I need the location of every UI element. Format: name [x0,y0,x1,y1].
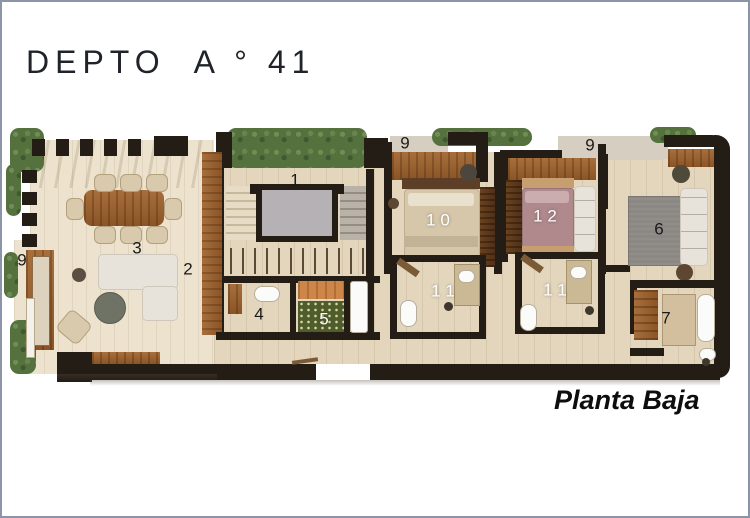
room-label: 4 [254,306,263,323]
room-label: 1 [290,172,299,189]
bath11b-toilet [520,304,537,331]
stair-flight-left [226,186,256,240]
bed10-top-corner-wall-v [476,132,488,182]
bath11a-toilet [400,300,417,327]
sofa-chaise [142,286,178,321]
dining-chair-7 [66,198,84,220]
bath7-shelves [634,290,658,340]
bath11a-left-wall [390,255,397,339]
room-label: 3 [132,240,141,257]
room6-entry-wall [605,265,630,272]
room6-sofa [680,188,708,266]
coffee-table [94,292,126,324]
room-label: 2 [183,261,192,278]
bath4-vanity [228,284,242,314]
top-wall-right [664,135,724,147]
planter-left-upper [6,164,21,216]
bed12-headboard [522,178,574,188]
floor-plan: 12345679991 01 11 21 1 [2,2,750,518]
dining-chair-3 [146,174,168,192]
bath11a-bottom-wall [390,332,486,339]
bath4-divider-wall [290,276,296,336]
room-label: 1 1 [431,283,455,300]
bed12-pergola [508,158,596,180]
dining-chair-8 [164,198,182,220]
left-beam-4 [22,234,37,247]
room-label: 5 [319,311,328,328]
bath11a-right-wall [479,255,486,339]
bath11a-shower-drain [444,302,453,311]
right-outer-wall [714,135,730,378]
room6-console [668,149,714,167]
pantry-door-panel [350,281,368,333]
plan-caption: Planta Baja [554,385,700,416]
pergola-header-block [154,136,188,156]
entrance-gap [316,364,370,380]
dining-chair-1 [94,174,116,192]
elevator-shaft [256,184,338,242]
room-label: 9 [17,252,26,269]
room-label: 6 [654,221,663,238]
bed10-plant-pot [460,164,477,181]
terrace-door-leaf [26,298,35,358]
bath7-top-wall [630,280,718,288]
pantry-counter [298,281,344,299]
pergola-beam-end-4 [104,139,117,156]
bath7-tub [697,294,715,342]
room-label: 1 1 [543,282,567,299]
bed12-pillows [525,191,569,203]
terrace-drop-shadow [57,374,217,381]
bath7-shower-drain [702,358,710,366]
bed10-pillows [408,193,474,206]
dining-chair-6 [146,226,168,244]
left-beam-1 [22,170,37,183]
floor-plan-sheet: DEPTO A ° 41 [0,0,750,518]
room-label: 9 [585,137,594,154]
room6-left-wall-upper [600,154,608,209]
bath4-toilet [254,286,280,302]
bed10-throw [404,236,478,247]
pergola-beam-end-3 [80,139,93,156]
bath7-bottom-wall [630,348,664,356]
room-label: 7 [661,310,670,327]
dining-table [84,190,164,226]
bath11b-shower-drain [585,306,594,315]
planter-stairs-hedge [227,128,367,168]
room6-plant [672,165,690,183]
kitchen-feature-wall [202,152,222,335]
bed12-closet [506,180,522,254]
left-beam-3 [22,213,37,226]
elevator-jamb-left [250,184,262,194]
dining-chair-4 [94,226,116,244]
room-label: 1 0 [426,212,450,229]
side-table [72,268,86,282]
pergola-beam-end-2 [56,139,69,156]
room-label: 9 [400,135,409,152]
bed10-stool [388,198,399,209]
bed12-top-wall [500,150,562,158]
bath11a-basin [458,270,475,283]
left-beam-2 [22,192,37,205]
corridor-top-wall-left [216,332,380,340]
pergola-beam-end-1 [32,139,45,156]
planter-left-mid [4,252,18,298]
sofa-main [98,254,178,290]
room-label: 1 2 [533,208,557,225]
terrace-bench [92,352,160,364]
bath11b-basin [570,266,587,279]
stair-railing-slats [230,248,366,274]
elevator-jamb-right [332,184,344,194]
dining-chair-2 [120,174,142,192]
stair-flight-right [340,186,366,240]
pergola-beam-end-5 [128,139,141,156]
bed12-bench [574,186,596,252]
room6-side-table [676,264,693,281]
